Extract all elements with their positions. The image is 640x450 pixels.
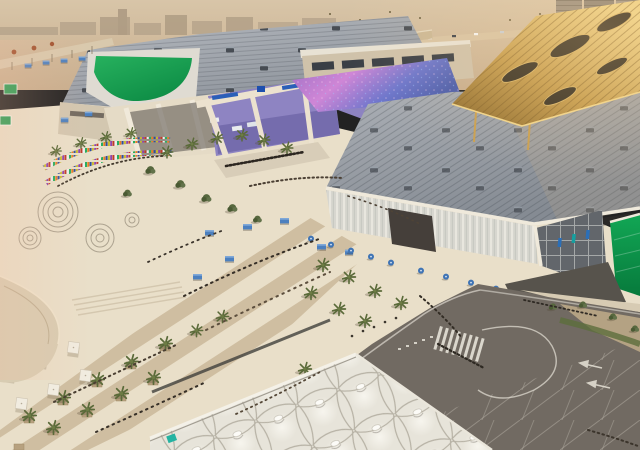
portal-emblem [257,86,265,92]
rendering-canvas [0,0,640,450]
scene-image [0,0,640,450]
